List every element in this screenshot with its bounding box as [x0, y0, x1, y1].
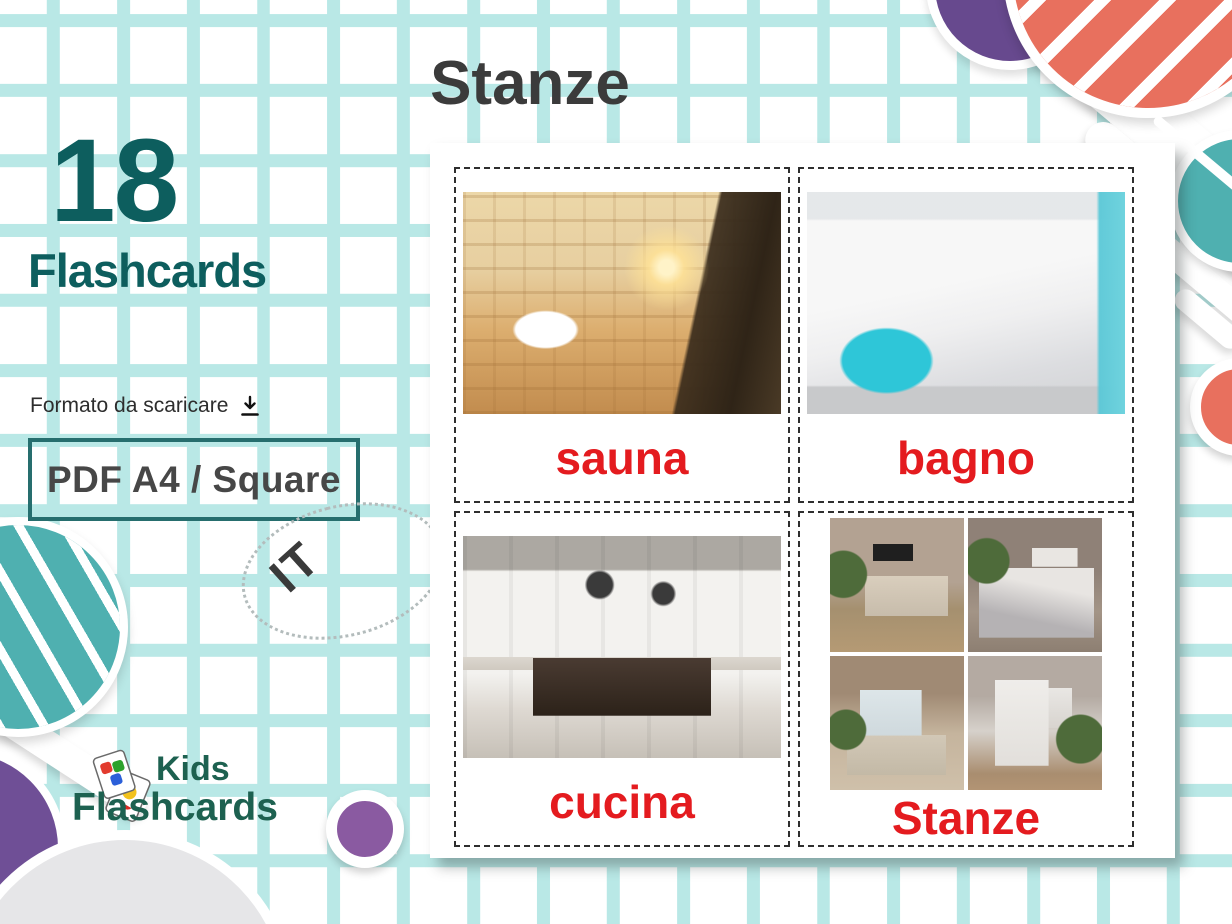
download-format-label: Formato da scaricare: [30, 394, 228, 418]
bedroom-photo: [968, 518, 1102, 652]
page-title: Stanze: [330, 48, 730, 119]
rooms-collage-photo: [830, 518, 1102, 790]
flashcard-label: bagno: [897, 414, 1035, 501]
flashcard-label: cucina: [549, 758, 695, 845]
flashcard-bagno: bagno: [798, 167, 1134, 503]
pdf-format-label: PDF A4 / Square: [47, 459, 341, 501]
flashcard-stanze: Stanze: [798, 511, 1134, 847]
logo-word-kids: Kids: [156, 750, 230, 789]
flashcard-label: Stanze: [892, 790, 1040, 845]
logo-word-flashcards: Flashcards: [72, 786, 278, 830]
flashcard-sauna: sauna: [454, 167, 790, 503]
flashcards-promo-page: Stanze 18 Flashcards Formato da scaricar…: [0, 0, 1232, 924]
bathroom-photo: [807, 192, 1125, 414]
teal-striped-circle-decoration: [0, 517, 128, 737]
sauna-photo: [463, 192, 781, 414]
circle-stripes: [1013, 0, 1232, 108]
coral-ring-circle-decoration: [1190, 358, 1232, 456]
coral-striped-circle-decoration: [1003, 0, 1232, 118]
download-icon[interactable]: [238, 394, 262, 418]
living-room-photo: [830, 656, 964, 790]
flashcard-count: 18: [50, 122, 177, 240]
kids-flashcards-logo[interactable]: Kids Flashcards: [70, 740, 330, 850]
studio-room-photo: [968, 656, 1102, 790]
flashcard-cucina: cucina: [454, 511, 790, 847]
kitchen-photo: [463, 536, 781, 758]
flashcards-sheet: sauna bagno cucina Stanze: [430, 143, 1175, 858]
flashcard-count-label: Flashcards: [28, 243, 266, 298]
flashcard-label: sauna: [556, 414, 689, 501]
pdf-format-button[interactable]: PDF A4 / Square: [28, 438, 360, 521]
purple-dot-decoration: [326, 790, 404, 868]
living-room-photo: [830, 518, 964, 652]
circle-stripes: [0, 525, 120, 729]
